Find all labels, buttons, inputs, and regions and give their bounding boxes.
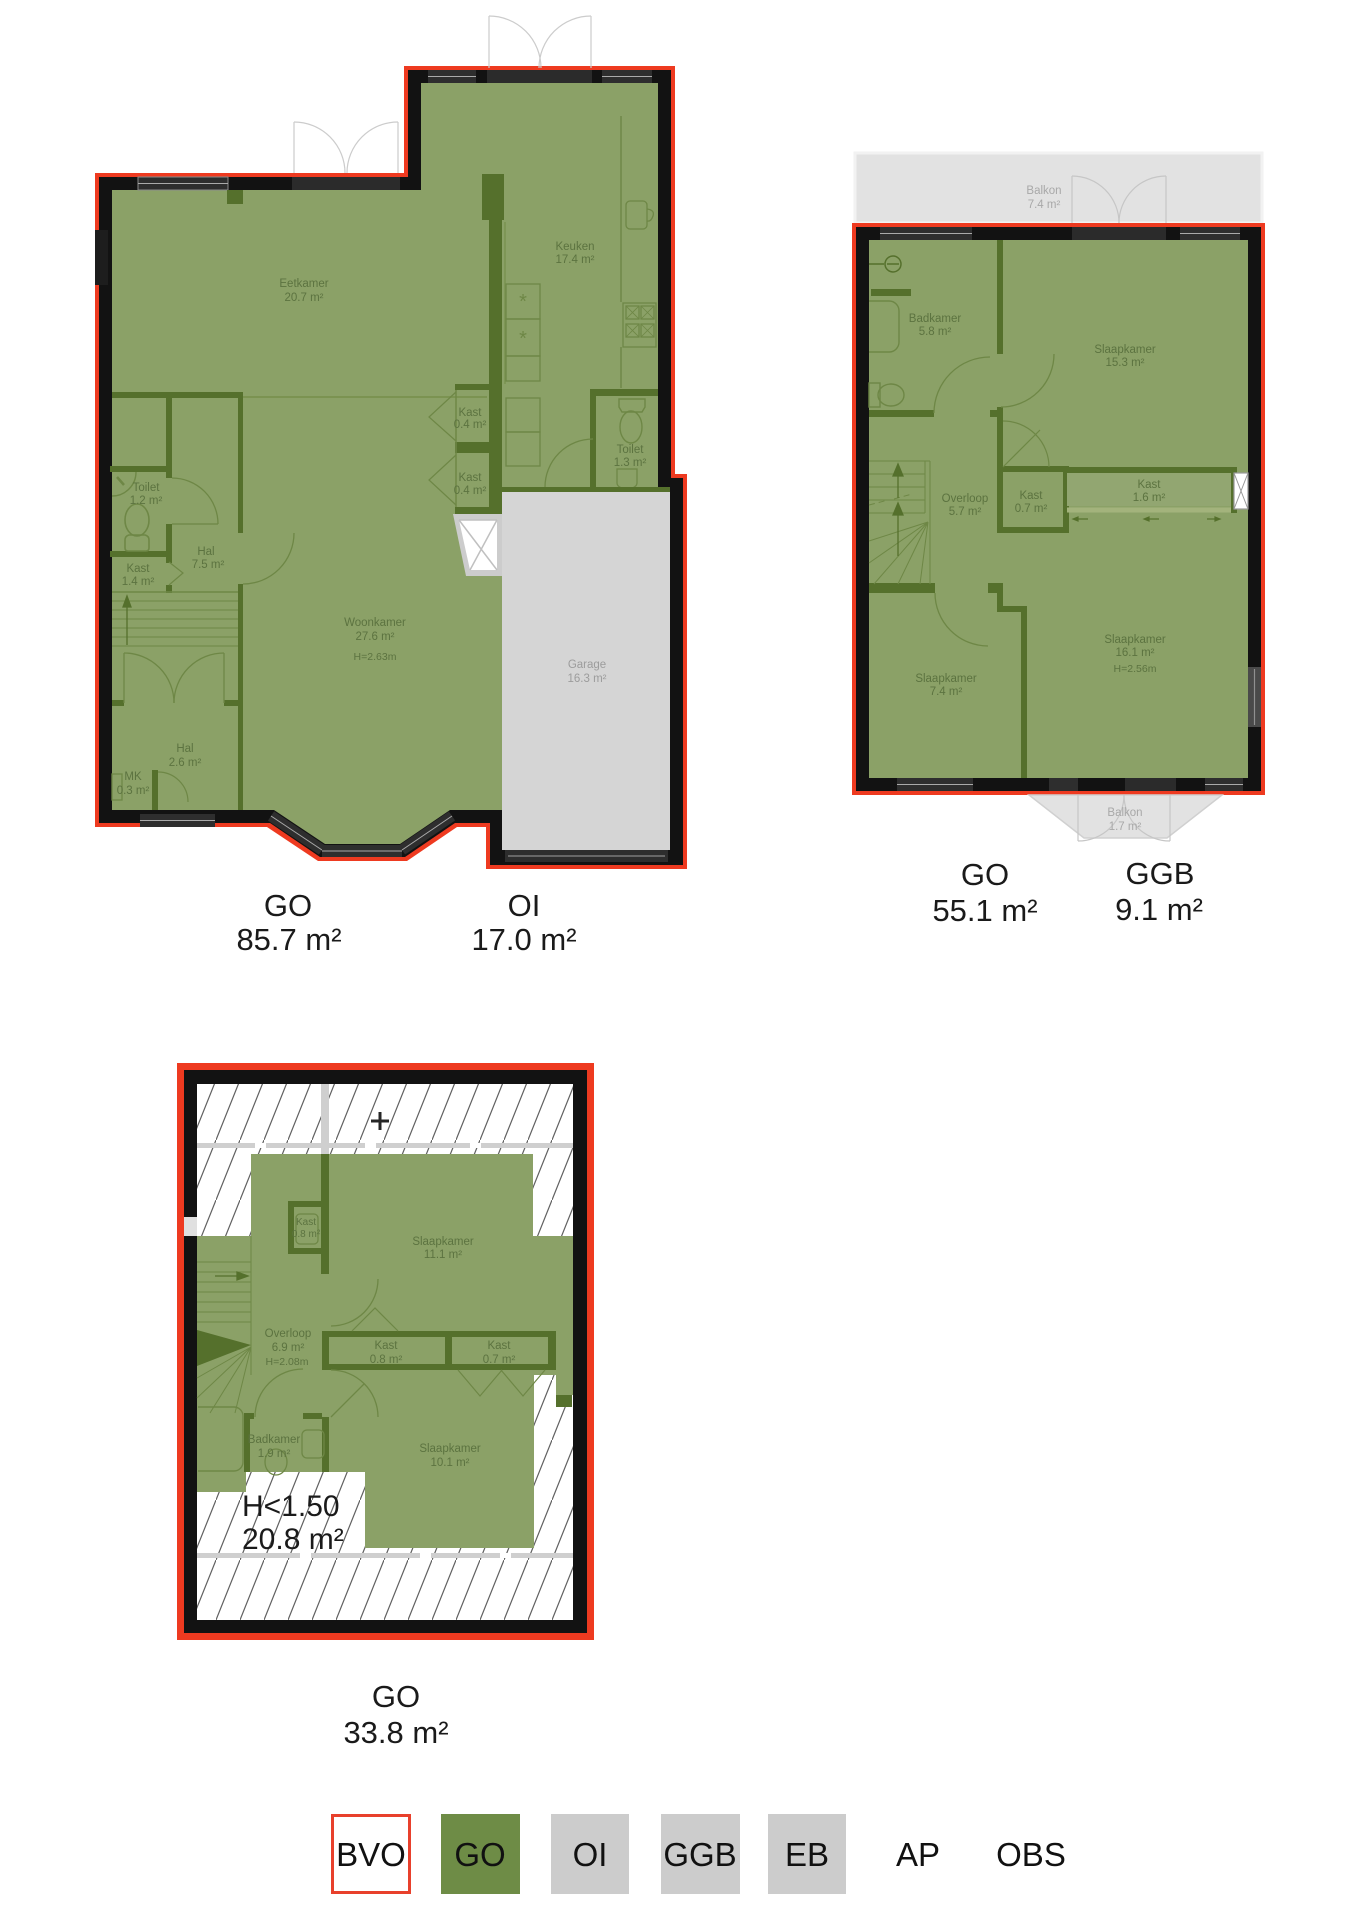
svg-text:GGB: GGB [1126,856,1195,891]
svg-text:EB: EB [785,1836,829,1873]
svg-text:55.1 m²: 55.1 m² [932,893,1037,928]
svg-text:0.8 m²: 0.8 m² [292,1229,321,1240]
svg-text:Toilet: Toilet [617,444,645,456]
svg-text:9.1 m²: 9.1 m² [1115,892,1203,927]
svg-text:1.6 m²: 1.6 m² [1133,492,1166,504]
svg-text:Kast: Kast [126,563,150,575]
svg-text:1.7 m²: 1.7 m² [1109,821,1142,833]
svg-text:0.3 m²: 0.3 m² [117,785,150,797]
svg-text:Kast: Kast [374,1340,398,1352]
svg-text:Toilet: Toilet [133,482,161,494]
svg-text:OI: OI [573,1836,608,1873]
svg-text:20.8 m²: 20.8 m² [242,1523,344,1556]
svg-text:11.1 m²: 11.1 m² [424,1249,462,1261]
svg-text:Kast: Kast [1019,490,1043,502]
svg-text:Kast: Kast [296,1217,316,1228]
svg-text:2.6 m²: 2.6 m² [169,757,202,769]
svg-text:H=2.56m: H=2.56m [1114,663,1157,675]
svg-text:5.8 m²: 5.8 m² [919,326,952,338]
svg-text:OBS: OBS [996,1836,1066,1873]
svg-text:33.8 m²: 33.8 m² [343,1715,448,1750]
svg-text:1.9 m²: 1.9 m² [258,1448,291,1460]
svg-text:Slaapkamer: Slaapkamer [1104,634,1166,646]
svg-text:Balkon: Balkon [1107,807,1142,819]
svg-text:Kast: Kast [487,1340,511,1352]
svg-text:Slaapkamer: Slaapkamer [412,1236,474,1248]
svg-text:0.4 m²: 0.4 m² [454,419,487,431]
svg-text:GO: GO [454,1836,505,1873]
svg-text:GGB: GGB [663,1836,736,1873]
svg-text:1.2 m²: 1.2 m² [130,495,163,507]
svg-text:Balkon: Balkon [1026,185,1061,197]
svg-text:AP: AP [896,1836,940,1873]
svg-text:85.7 m²: 85.7 m² [236,922,341,957]
svg-text:10.1 m²: 10.1 m² [431,1457,470,1469]
svg-text:1.3 m²: 1.3 m² [614,457,647,469]
svg-text:5.7 m²: 5.7 m² [949,506,982,518]
svg-text:Kast: Kast [458,472,482,484]
svg-text:MK: MK [124,771,142,783]
svg-text:H<1.50: H<1.50 [242,1490,340,1523]
svg-text:Eetkamer: Eetkamer [279,278,328,290]
svg-text:Hal: Hal [197,546,214,558]
svg-text:*: * [519,328,527,350]
svg-text:17.4 m²: 17.4 m² [556,254,595,266]
svg-text:16.1 m²: 16.1 m² [1116,647,1155,659]
svg-text:27.6 m²: 27.6 m² [356,631,395,643]
svg-text:Overloop: Overloop [265,1328,312,1340]
svg-text:GO: GO [264,888,312,923]
svg-text:17.0 m²: 17.0 m² [471,922,576,957]
svg-text:7.5 m²: 7.5 m² [192,559,225,571]
svg-text:Kast: Kast [1137,479,1161,491]
svg-text:Slaapkamer: Slaapkamer [1094,344,1156,356]
svg-text:Keuken: Keuken [555,241,594,253]
svg-text:GO: GO [961,857,1009,892]
svg-text:H=2.08m: H=2.08m [266,1356,309,1368]
svg-text:1.4 m²: 1.4 m² [122,576,155,588]
svg-text:BVO: BVO [336,1836,406,1873]
svg-text:H=2.63m: H=2.63m [354,651,397,663]
svg-text:Overloop: Overloop [942,493,989,505]
svg-text:16.3 m²: 16.3 m² [568,673,607,685]
svg-text:7.4 m²: 7.4 m² [930,686,963,698]
svg-text:0.8 m²: 0.8 m² [370,1354,403,1366]
svg-text:Garage: Garage [568,659,606,671]
svg-text:6.9 m²: 6.9 m² [272,1342,305,1354]
svg-text:0.7 m²: 0.7 m² [483,1354,516,1366]
svg-text:0.7 m²: 0.7 m² [1015,503,1048,515]
svg-text:20.7 m²: 20.7 m² [285,292,324,304]
svg-text:OI: OI [508,888,541,923]
svg-text:Badkamer: Badkamer [248,1434,301,1446]
svg-text:Woonkamer: Woonkamer [344,617,406,629]
svg-text:Slaapkamer: Slaapkamer [419,1443,481,1455]
svg-text:Badkamer: Badkamer [909,313,962,325]
svg-text:15.3 m²: 15.3 m² [1106,357,1145,369]
svg-text:7.4 m²: 7.4 m² [1028,199,1061,211]
svg-text:Slaapkamer: Slaapkamer [915,673,977,685]
svg-text:Kast: Kast [458,407,482,419]
svg-text:Hal: Hal [176,743,193,755]
svg-text:GO: GO [372,1679,420,1714]
svg-text:*: * [519,291,527,313]
svg-text:0.4 m²: 0.4 m² [454,485,487,497]
